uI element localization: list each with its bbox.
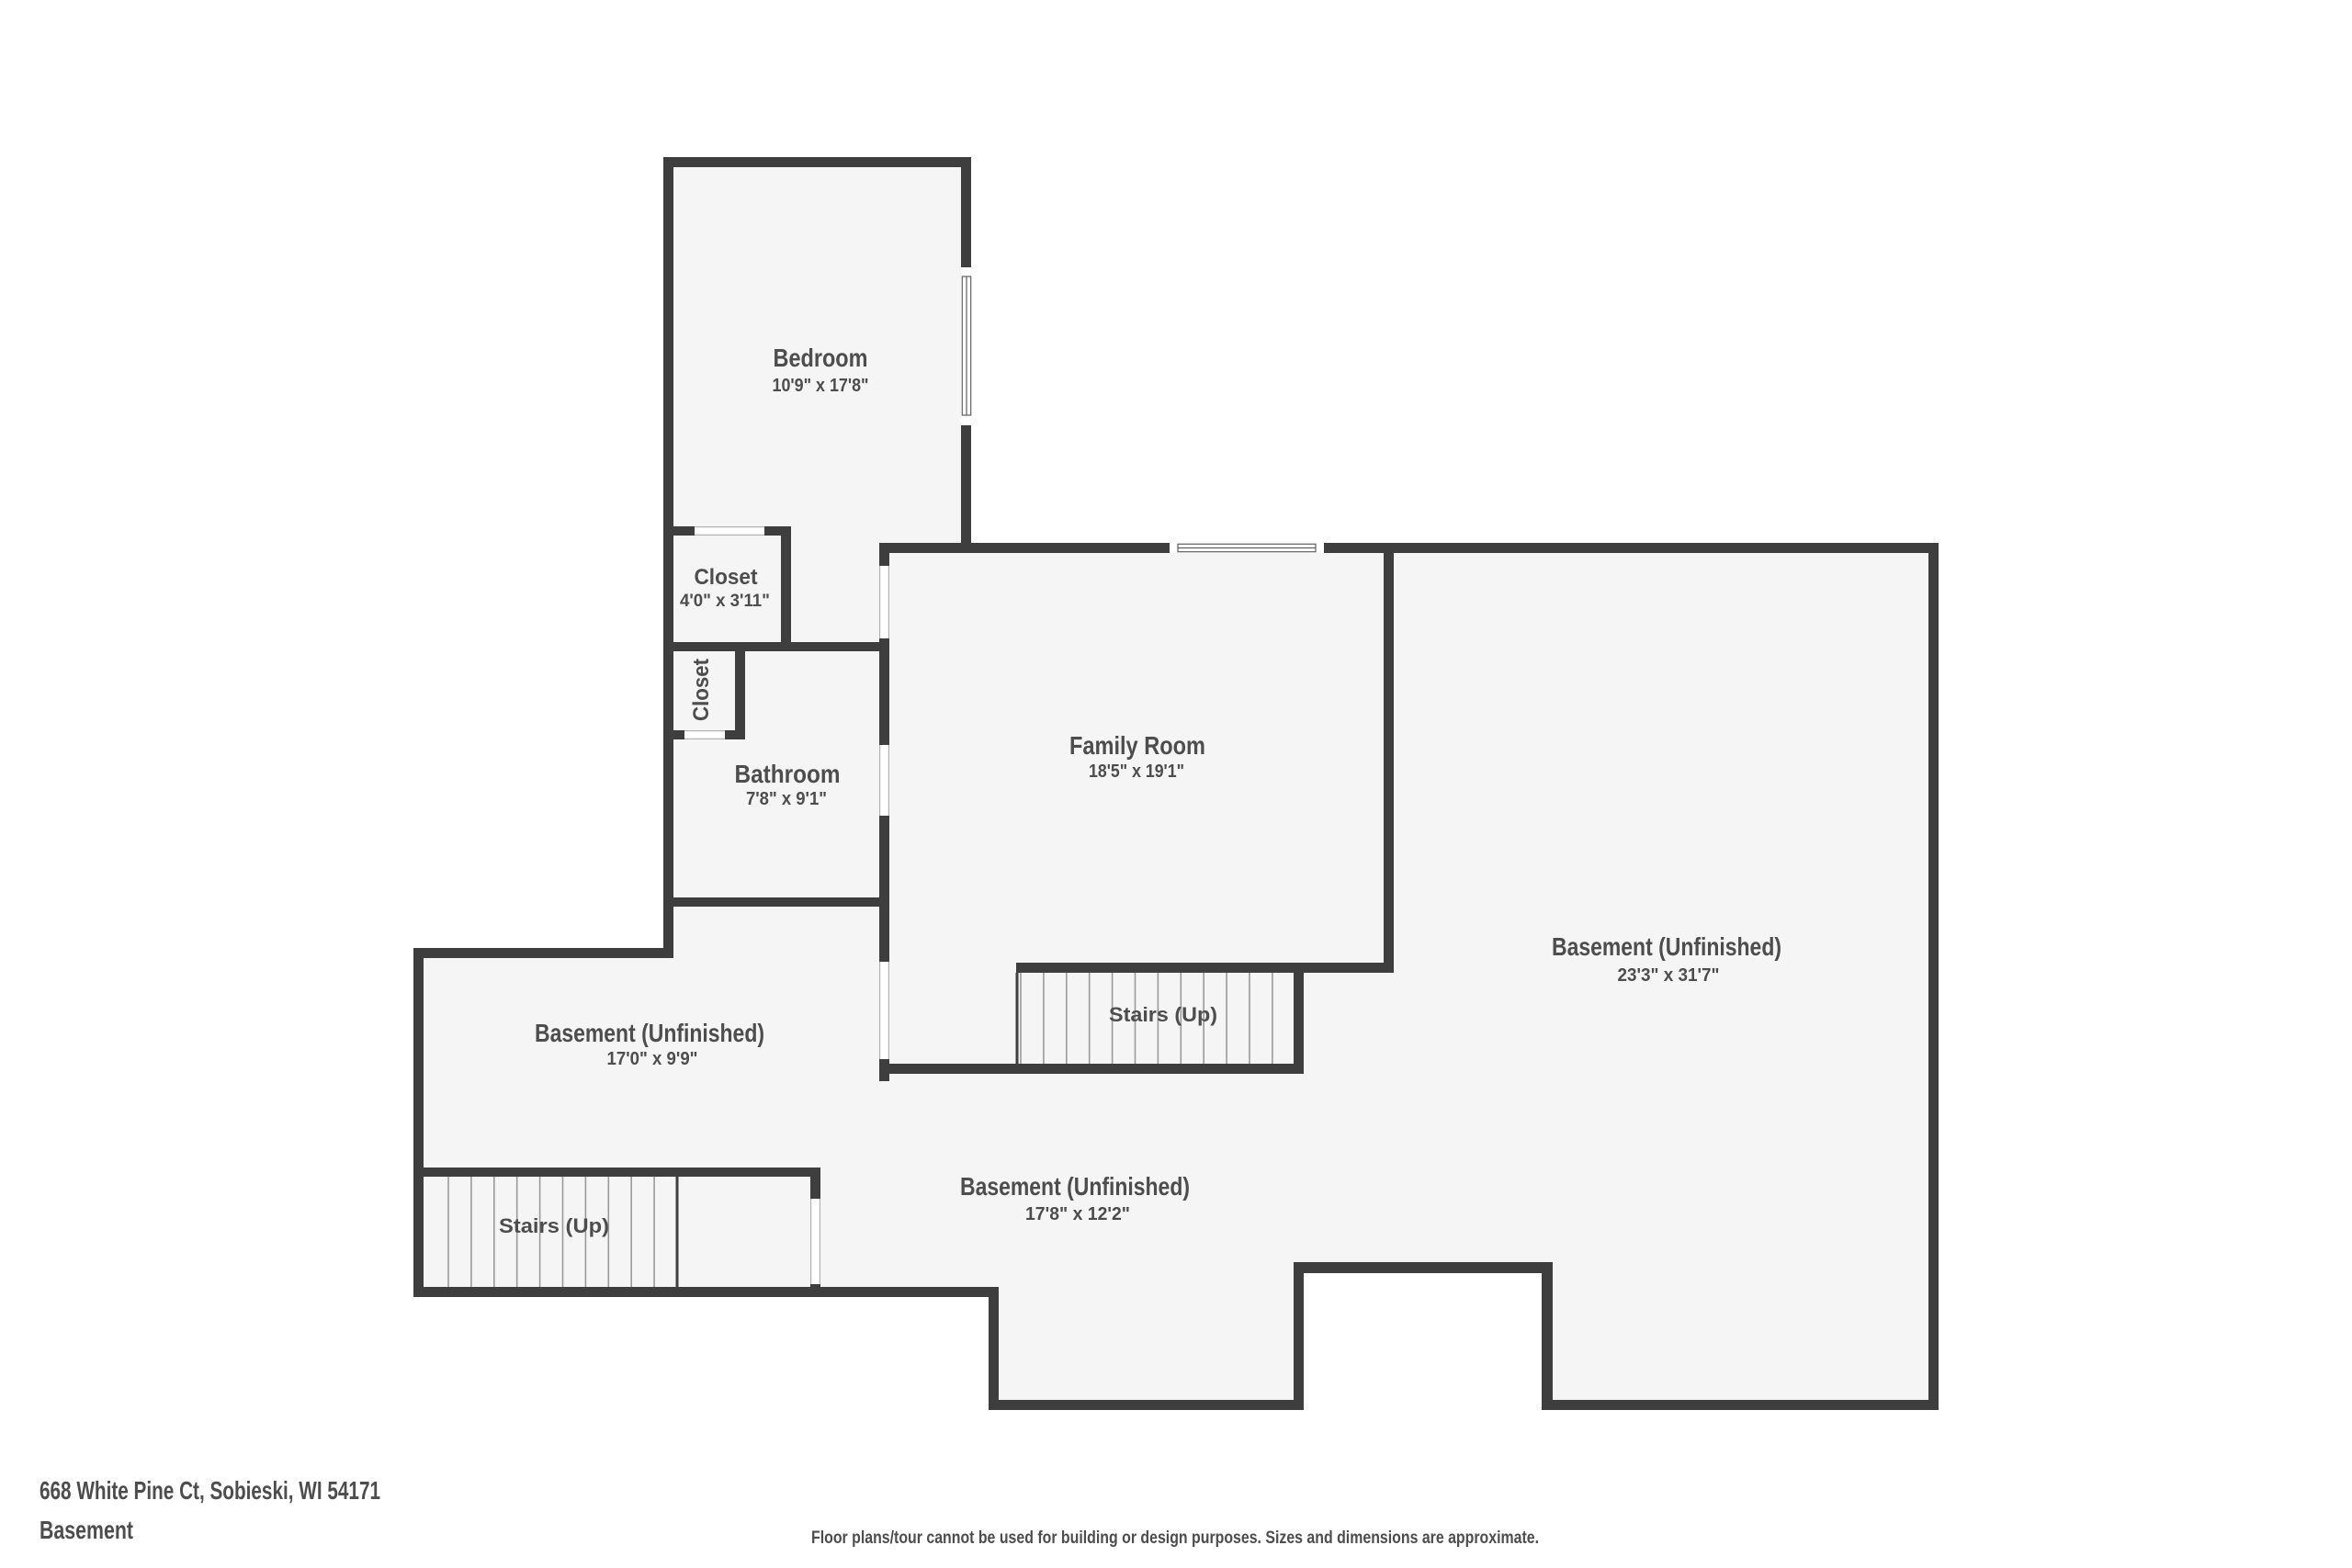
svg-text:Closet: Closet (695, 565, 758, 590)
svg-text:Basement (Unfinished): Basement (Unfinished) (535, 1019, 764, 1047)
svg-text:23'3" x 31'7": 23'3" x 31'7" (1618, 965, 1720, 986)
svg-text:17'8" x 12'2": 17'8" x 12'2" (1025, 1204, 1130, 1224)
svg-text:17'0" x 9'9": 17'0" x 9'9" (607, 1049, 698, 1069)
svg-text:7'8" x 9'1": 7'8" x 9'1" (746, 789, 827, 809)
svg-text:668 White Pine Ct, Sobieski, W: 668 White Pine Ct, Sobieski, WI 54171 (40, 1476, 380, 1505)
svg-text:Stairs (Up): Stairs (Up) (1109, 1003, 1217, 1026)
svg-text:Stairs (Up): Stairs (Up) (499, 1214, 609, 1237)
svg-text:Bedroom: Bedroom (774, 344, 868, 372)
svg-text:Family Room: Family Room (1069, 731, 1205, 760)
svg-text:Floor plans/tour cannot be use: Floor plans/tour cannot be used for buil… (811, 1529, 1539, 1548)
svg-text:Basement: Basement (40, 1516, 133, 1544)
svg-text:Closet: Closet (689, 659, 714, 721)
svg-text:Basement (Unfinished): Basement (Unfinished) (1552, 932, 1781, 961)
svg-text:Basement (Unfinished): Basement (Unfinished) (960, 1172, 1190, 1201)
svg-text:Bathroom: Bathroom (735, 760, 841, 788)
svg-text:4'0" x 3'11": 4'0" x 3'11" (680, 592, 770, 611)
svg-text:18'5" x 19'1": 18'5" x 19'1" (1089, 761, 1184, 782)
svg-text:10'9" x 17'8": 10'9" x 17'8" (773, 376, 869, 396)
